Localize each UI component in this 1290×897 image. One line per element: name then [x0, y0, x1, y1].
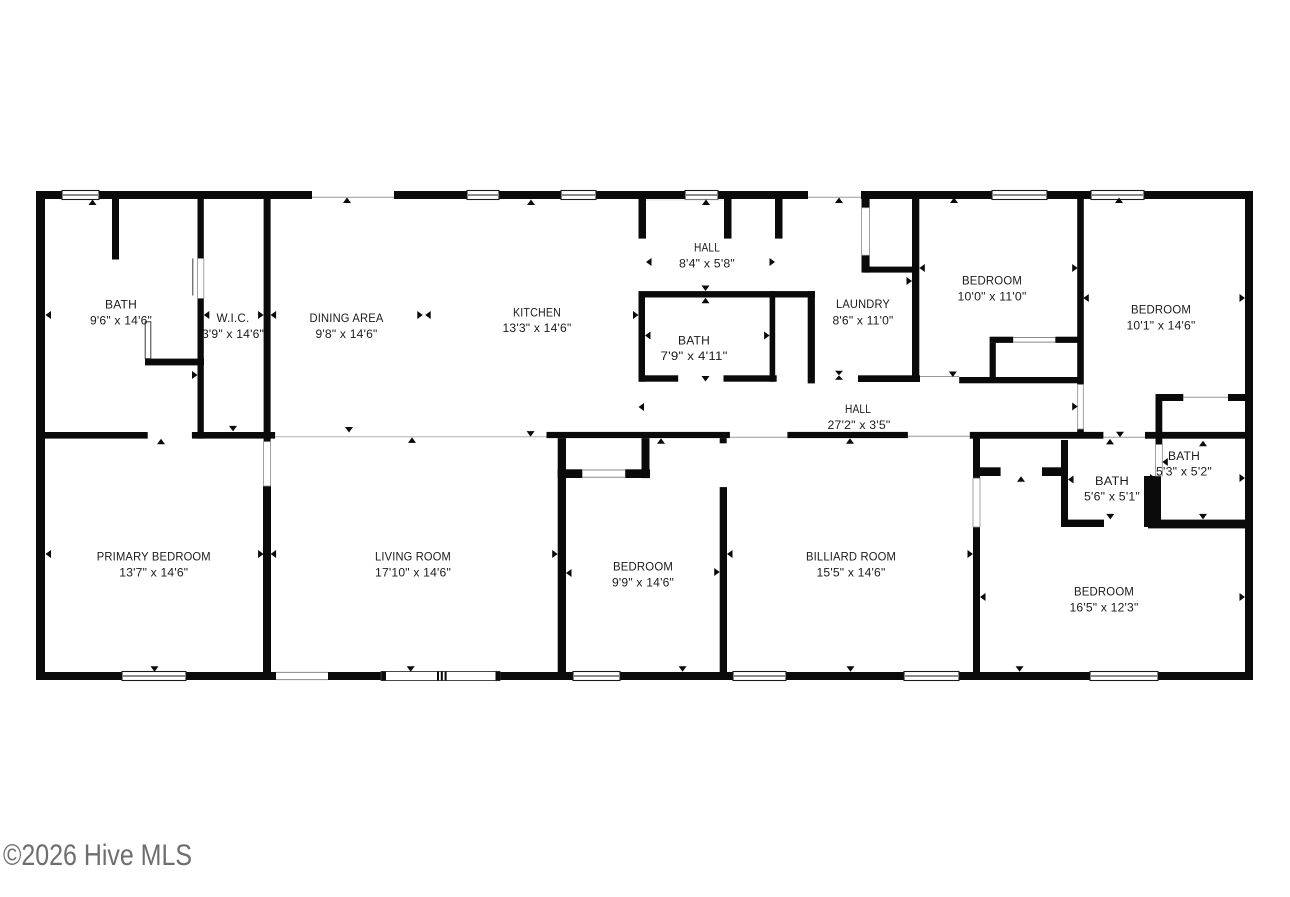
svg-text:W.I.C.: W.I.C. — [217, 311, 250, 325]
svg-text:10'0" x 11'0": 10'0" x 11'0" — [958, 289, 1027, 303]
svg-text:BEDROOM: BEDROOM — [613, 559, 673, 573]
svg-text:DINING AREA: DINING AREA — [310, 311, 384, 325]
svg-text:5'3" x 5'2": 5'3" x 5'2" — [1156, 464, 1212, 478]
svg-text:©2026 Hive MLS: ©2026 Hive MLS — [3, 839, 192, 872]
svg-text:BEDROOM: BEDROOM — [1131, 302, 1191, 316]
svg-text:BEDROOM: BEDROOM — [962, 273, 1022, 287]
svg-text:BEDROOM: BEDROOM — [1074, 584, 1134, 598]
svg-text:13'3" x 14'6": 13'3" x 14'6" — [503, 321, 572, 335]
svg-text:BILLIARD ROOM: BILLIARD ROOM — [806, 549, 896, 563]
svg-text:9'8" x 14'6": 9'8" x 14'6" — [316, 327, 378, 341]
svg-text:7'9" x 4'11": 7'9" x 4'11" — [661, 349, 728, 363]
svg-text:BATH: BATH — [105, 297, 137, 311]
svg-text:PRIMARY BEDROOM: PRIMARY BEDROOM — [97, 549, 211, 563]
svg-text:HALL: HALL — [845, 402, 871, 416]
svg-text:9'9" x 14'6": 9'9" x 14'6" — [612, 575, 674, 589]
svg-text:16'5" x 12'3": 16'5" x 12'3" — [1070, 600, 1139, 614]
svg-text:BATH: BATH — [1095, 474, 1129, 488]
svg-text:BATH: BATH — [1168, 449, 1200, 463]
svg-text:8'4" x 5'8": 8'4" x 5'8" — [679, 256, 735, 270]
svg-text:3'9" x 14'6": 3'9" x 14'6" — [202, 327, 264, 341]
svg-text:8'6" x 11'0": 8'6" x 11'0" — [833, 313, 894, 327]
svg-text:27'2" x 3'5": 27'2" x 3'5" — [828, 418, 891, 432]
svg-text:15'5" x 14'6": 15'5" x 14'6" — [817, 565, 886, 579]
svg-text:13'7" x 14'6": 13'7" x 14'6" — [119, 565, 188, 579]
svg-text:LAUNDRY: LAUNDRY — [836, 297, 890, 311]
svg-text:10'1" x 14'6": 10'1" x 14'6" — [1127, 318, 1196, 332]
svg-text:HALL: HALL — [694, 240, 720, 254]
svg-text:KITCHEN: KITCHEN — [513, 305, 561, 319]
svg-text:BATH: BATH — [678, 333, 710, 347]
svg-text:LIVING ROOM: LIVING ROOM — [375, 549, 451, 563]
svg-text:5'6" x 5'1": 5'6" x 5'1" — [1084, 489, 1140, 503]
svg-text:17'10" x 14'6": 17'10" x 14'6" — [375, 565, 451, 579]
svg-text:9'6" x 14'6": 9'6" x 14'6" — [90, 313, 152, 327]
